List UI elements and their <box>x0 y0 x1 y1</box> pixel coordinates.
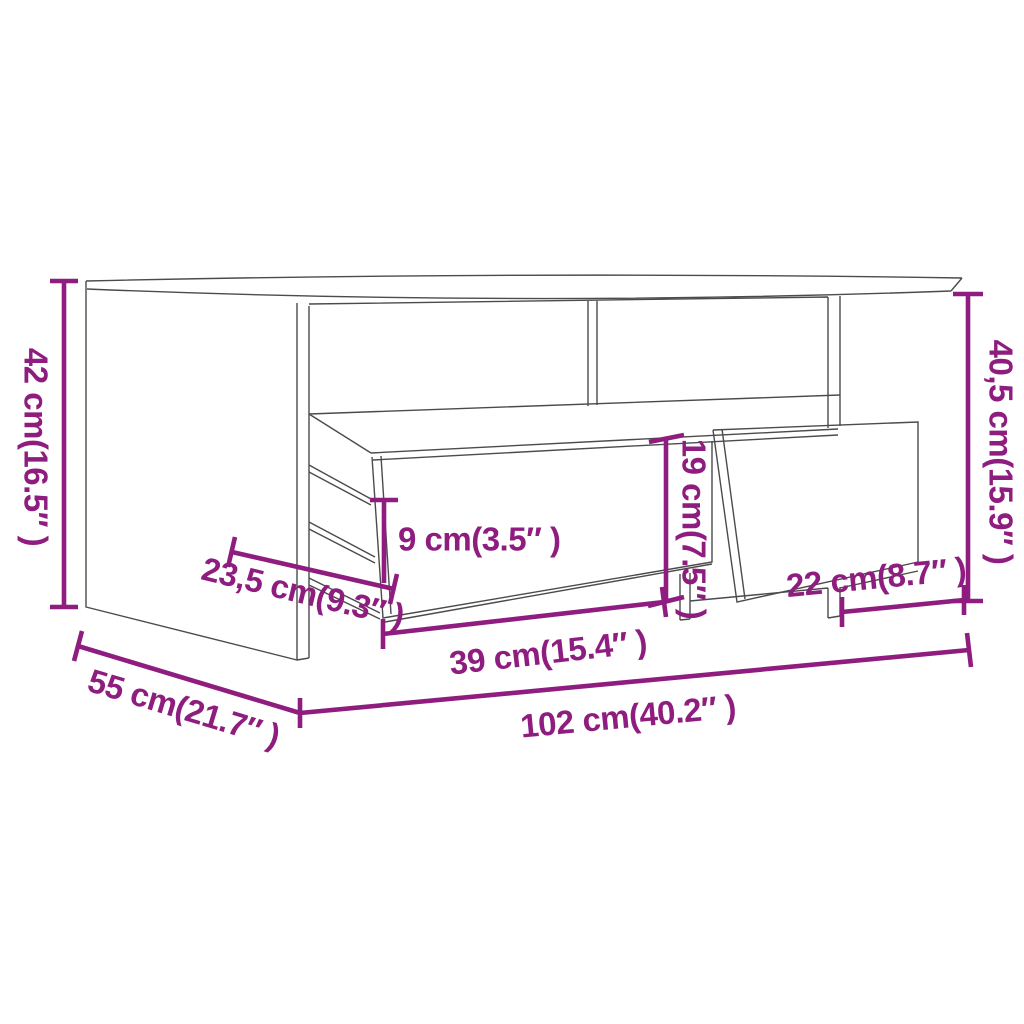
dim-label-drawer-front-height: 9 cm(3.5″ ) <box>398 521 561 558</box>
shelf-compartment <box>309 296 840 428</box>
dim-label-right-drawer-width: 22 cm(8.7″ ) <box>784 550 967 604</box>
dim-label-overall-width: 102 cm(40.2″ ) <box>519 687 738 744</box>
dim-label-shelf-opening-height: 19 cm(7.5″ ) <box>676 439 713 619</box>
dimension-annotations: 42 cm(16.5″ ) 23,5 cm(9.3″ ) 9 cm(3.5″ )… <box>18 281 1020 754</box>
table-top-outline <box>86 275 962 298</box>
dim-line-drawer-front-height <box>370 500 398 583</box>
dim-label-overall-depth: 55 cm(21.7″ ) <box>84 662 284 755</box>
furniture-line-drawing <box>86 275 962 660</box>
dim-label-overall-height-left: 42 cm(16.5″ ) <box>18 348 55 546</box>
dim-label-overall-height-right: 40,5 cm(15.9″ ) <box>983 340 1020 565</box>
dim-label-top-depth: 23,5 cm(9.3″ ) <box>198 550 408 634</box>
dimension-diagram-page: 42 cm(16.5″ ) 23,5 cm(9.3″ ) 9 cm(3.5″ )… <box>0 0 1024 1024</box>
coffee-table-dimension-diagram: 42 cm(16.5″ ) 23,5 cm(9.3″ ) 9 cm(3.5″ )… <box>0 0 1024 1024</box>
dim-label-left-drawer-width: 39 cm(15.4″ ) <box>447 622 648 681</box>
